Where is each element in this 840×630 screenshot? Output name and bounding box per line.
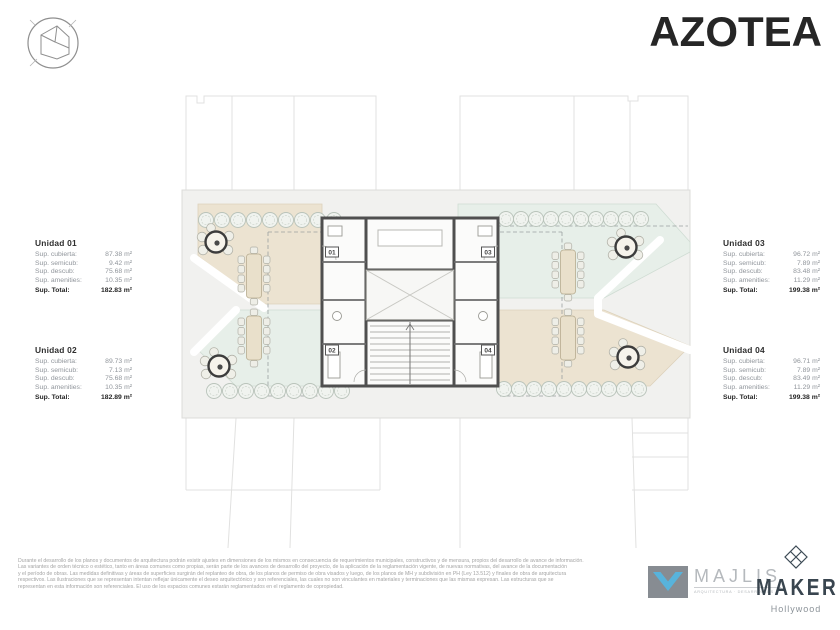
svg-text:04: 04 [484,348,492,355]
stair-core [322,218,498,386]
spec-row: Sup. amenities:11.29 m² [723,384,820,393]
spec-row: Sup. cubierta:87.38 m² [35,251,132,260]
spec-total-row: Sup. Total:182.89 m² [35,394,132,403]
unit-spec-03: Unidad 03 Sup. cubierta:96.72 m² Sup. se… [723,238,820,296]
legal-disclaimer: Durante el desarrollo de los planos y do… [18,558,593,590]
unit-spec-title: Unidad 02 [35,345,132,355]
spec-row: Sup. amenities:10.35 m² [35,384,132,393]
unit-spec-02: Unidad 02 Sup. cubierta:89.73 m² Sup. se… [35,345,132,403]
svg-text:01: 01 [328,250,336,257]
spec-row: Sup. descub:75.68 m² [35,375,132,384]
spec-row: Sup. semicub:9.42 m² [35,260,132,269]
maker-logo-location: Hollywood [756,604,836,614]
spec-row: Sup. descub:83.49 m² [723,375,820,384]
spec-row: Sup. cubierta:96.72 m² [723,251,820,260]
spec-total-row: Sup. Total:182.83 m² [35,287,132,296]
spec-row: Sup. descub:83.48 m² [723,268,820,277]
floorplan-drawing: 01 02 03 04 [0,0,840,630]
spec-row: Sup. semicub:7.89 m² [723,260,820,269]
disclaimer-line: representan en esta información son refe… [18,584,593,590]
brochure-page: AZOTEA [0,0,840,630]
unit-spec-04: Unidad 04 Sup. cubierta:96.71 m² Sup. se… [723,345,820,403]
svg-text:03: 03 [484,250,492,257]
disclaimer-line: respectivos. Las ilustraciones que se re… [18,577,593,583]
spec-row: Sup. amenities:10.35 m² [35,277,132,286]
maker-logo-icon [783,544,809,570]
unit-tag-01: 01 [326,247,339,257]
spec-total-row: Sup. Total:199.38 m² [723,287,820,296]
maker-logo: MAKER Hollywood [756,544,836,614]
spec-row: Sup. descub:75.68 m² [35,268,132,277]
unit-tag-04: 04 [482,345,495,355]
spec-row: Sup. semicub:7.89 m² [723,367,820,376]
unit-spec-title: Unidad 01 [35,238,132,248]
spec-total-row: Sup. Total:199.38 m² [723,394,820,403]
maker-logo-name: MAKER [756,576,836,602]
spec-row: Sup. cubierta:89.73 m² [35,358,132,367]
svg-text:02: 02 [328,348,336,355]
unit-spec-title: Unidad 04 [723,345,820,355]
spec-row: Sup. amenities:11.29 m² [723,277,820,286]
spec-row: Sup. semicub:7.13 m² [35,367,132,376]
unit-tag-02: 02 [326,345,339,355]
unit-tag-03: 03 [482,247,495,257]
unit-spec-01: Unidad 01 Sup. cubierta:87.38 m² Sup. se… [35,238,132,296]
unit-spec-title: Unidad 03 [723,238,820,248]
disclaimer-line: Las variantes de orden técnico o estétic… [18,564,593,570]
spec-row: Sup. cubierta:96.71 m² [723,358,820,367]
majlis-logo-icon [648,566,688,598]
